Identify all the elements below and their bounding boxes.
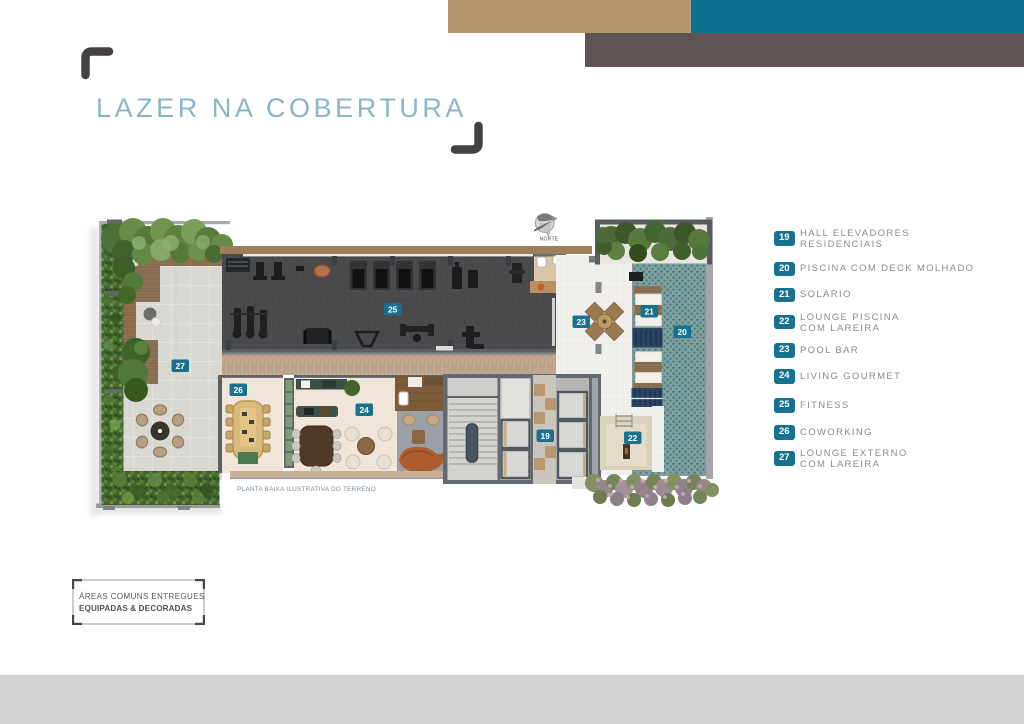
svg-text:22: 22 bbox=[628, 433, 638, 443]
svg-text:24: 24 bbox=[359, 405, 369, 415]
svg-text:25: 25 bbox=[388, 305, 398, 315]
svg-text:19: 19 bbox=[540, 431, 550, 441]
svg-text:NORTE: NORTE bbox=[540, 237, 559, 243]
svg-text:23: 23 bbox=[576, 317, 586, 327]
svg-text:21: 21 bbox=[644, 307, 654, 317]
svg-text:26: 26 bbox=[233, 385, 243, 395]
svg-text:20: 20 bbox=[677, 327, 687, 337]
svg-text:27: 27 bbox=[175, 361, 185, 371]
